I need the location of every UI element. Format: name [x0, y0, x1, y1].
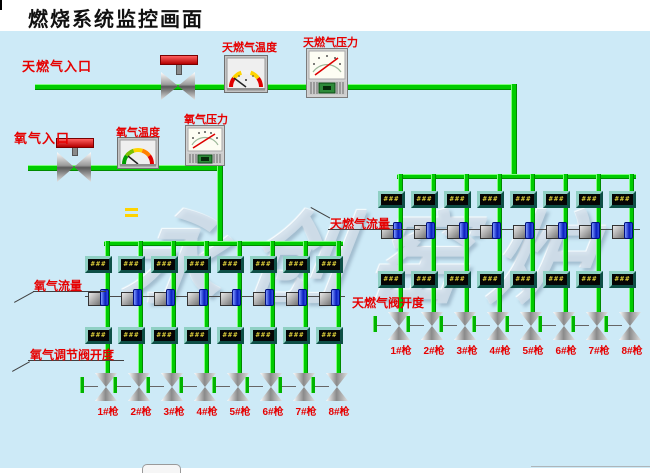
flow-display: ### — [576, 191, 603, 208]
valve-link-line — [215, 386, 230, 387]
opening-display: ### — [250, 327, 277, 344]
oxygen-valve-opening-label: 氧气调节阀开度 — [30, 346, 114, 363]
opening-display: ### — [609, 271, 636, 288]
flow-display: ### — [151, 256, 178, 273]
opening-display: ### — [217, 327, 244, 344]
control-valve-actuator[interactable] — [579, 222, 601, 239]
opening-display: ### — [477, 271, 504, 288]
actuator-cap-icon — [624, 222, 633, 239]
valve-link-line — [442, 325, 457, 326]
actuator-cap-icon — [492, 222, 501, 239]
valve-link-line — [116, 386, 131, 387]
gas-main-pipe — [35, 84, 517, 90]
control-valve-actuator[interactable] — [253, 289, 275, 306]
flow-display: ### — [411, 191, 438, 208]
pipe-stub — [406, 316, 410, 332]
control-valve-actuator[interactable] — [154, 289, 176, 306]
control-valve-actuator[interactable] — [220, 289, 242, 306]
control-valve-actuator[interactable] — [121, 289, 143, 306]
control-valve-actuator[interactable] — [612, 222, 634, 239]
control-valve-actuator[interactable] — [187, 289, 209, 306]
valve-link-line — [376, 325, 391, 326]
actuator-cap-icon — [393, 222, 402, 239]
control-valve-actuator[interactable] — [286, 289, 308, 306]
flow-display: ### — [85, 256, 112, 273]
flow-display: ### — [543, 191, 570, 208]
oxygen-pressure-meter — [185, 125, 225, 166]
gun-valve-icon[interactable] — [326, 373, 348, 401]
flow-display: ### — [217, 256, 244, 273]
valve-link-line — [248, 386, 263, 387]
oxygen-pressure-label: 氧气压力 — [184, 111, 228, 127]
valve-link-line — [83, 386, 98, 387]
flow-display: ### — [510, 191, 537, 208]
actuator-cap-icon — [426, 222, 435, 239]
gun-label: 8#枪 — [311, 403, 367, 418]
valve-link-line — [574, 325, 589, 326]
gas-pressure-label: 天燃气压力 — [303, 34, 358, 50]
actuator-cap-icon — [525, 222, 534, 239]
pipe-stub — [505, 316, 509, 332]
actuator-cap-icon — [133, 289, 142, 306]
opening-display: ### — [283, 327, 310, 344]
opening-display: ### — [118, 327, 145, 344]
flow-display: ### — [609, 191, 636, 208]
opening-display: ### — [316, 327, 343, 344]
valve-link-line — [182, 386, 197, 387]
pipe-stub — [113, 377, 117, 393]
oxygen-temp-label: 氧气温度 — [116, 124, 160, 140]
watermark-seal — [125, 205, 138, 217]
pipe-stub — [278, 377, 282, 393]
pipe-stub — [212, 377, 216, 393]
valve-link-line — [314, 386, 329, 387]
actuator-cap-icon — [298, 289, 307, 306]
pipe-stub — [373, 316, 377, 332]
flow-display: ### — [444, 191, 471, 208]
actuator-cap-icon — [232, 289, 241, 306]
gas-pressure-meter — [306, 48, 348, 98]
flow-display: ### — [250, 256, 277, 273]
panel-edge-line — [531, 466, 650, 467]
valve-link-line — [149, 386, 164, 387]
actuator-cap-icon — [459, 222, 468, 239]
opening-display: ### — [184, 327, 211, 344]
partial-button[interactable] — [142, 464, 181, 473]
oxygen-flow-label: 氧气流量 — [34, 277, 82, 294]
page-title: 燃烧系统监控画面 — [28, 3, 204, 32]
gun-valve-icon[interactable] — [619, 312, 641, 340]
actuator-cap-icon — [265, 289, 274, 306]
pipe-stub — [604, 316, 608, 332]
valve-link-line — [541, 325, 556, 326]
opening-display: ### — [85, 327, 112, 344]
pipe-stub — [179, 377, 183, 393]
pipe-stub — [538, 316, 542, 332]
flow-display: ### — [118, 256, 145, 273]
gas-valve-opening-label: 天燃气阀开度 — [352, 294, 424, 311]
control-valve-actuator[interactable] — [447, 222, 469, 239]
gun-label: 8#枪 — [604, 342, 650, 357]
control-valve-actuator[interactable] — [414, 222, 436, 239]
pipe-stub — [80, 377, 84, 393]
valve-link-line — [607, 325, 622, 326]
valve-link-line — [281, 386, 296, 387]
flow-display: ### — [316, 256, 343, 273]
pipe-stub — [245, 377, 249, 393]
valve-link-line — [409, 325, 424, 326]
gas-flow-label: 天燃气流量 — [330, 215, 390, 232]
gas-temperature-gauge — [224, 55, 268, 93]
pipe-stub — [146, 377, 150, 393]
control-valve-actuator[interactable] — [546, 222, 568, 239]
actuator-cap-icon — [199, 289, 208, 306]
opening-display: ### — [151, 327, 178, 344]
flow-display: ### — [184, 256, 211, 273]
gas-column-8: ### ### 8#枪 — [604, 174, 650, 364]
oxygen-column-8: ### ### 8#枪 — [311, 241, 367, 431]
oxygen-temperature-gauge — [117, 137, 159, 169]
actuator-cap-icon — [591, 222, 600, 239]
flow-display: ### — [378, 191, 405, 208]
control-valve-actuator[interactable] — [480, 222, 502, 239]
valve-link-line — [508, 325, 523, 326]
pipe-stub — [311, 377, 315, 393]
flow-display: ### — [477, 191, 504, 208]
opening-display: ### — [411, 271, 438, 288]
opening-display: ### — [543, 271, 570, 288]
opening-display: ### — [576, 271, 603, 288]
actuator-cap-icon — [166, 289, 175, 306]
control-valve-actuator[interactable] — [513, 222, 535, 239]
flow-display: ### — [283, 256, 310, 273]
gas-feed-pipe — [511, 84, 517, 178]
actuator-cap-icon — [331, 289, 340, 306]
corner-mark — [0, 0, 2, 10]
opening-display: ### — [510, 271, 537, 288]
pipe-stub — [472, 316, 476, 332]
valve-link-line — [475, 325, 490, 326]
gas-valve-handle — [160, 55, 198, 65]
control-valve-actuator[interactable] — [319, 289, 341, 306]
oxygen-feed-pipe — [217, 165, 223, 246]
gas-temp-label: 天燃气温度 — [222, 39, 277, 55]
actuator-cap-icon — [558, 222, 567, 239]
gas-inlet-label: 天燃气入口 — [22, 56, 92, 75]
hmi-screen: 燃烧系统监控画面 永创窑炉 天燃气入口 天燃气温度 天燃气压力 氧气入口 — [0, 0, 650, 473]
pipe-stub — [571, 316, 575, 332]
oxygen-inlet-label: 氧气入口 — [14, 128, 70, 147]
opening-display: ### — [378, 271, 405, 288]
pipe-stub — [439, 316, 443, 332]
opening-display: ### — [444, 271, 471, 288]
